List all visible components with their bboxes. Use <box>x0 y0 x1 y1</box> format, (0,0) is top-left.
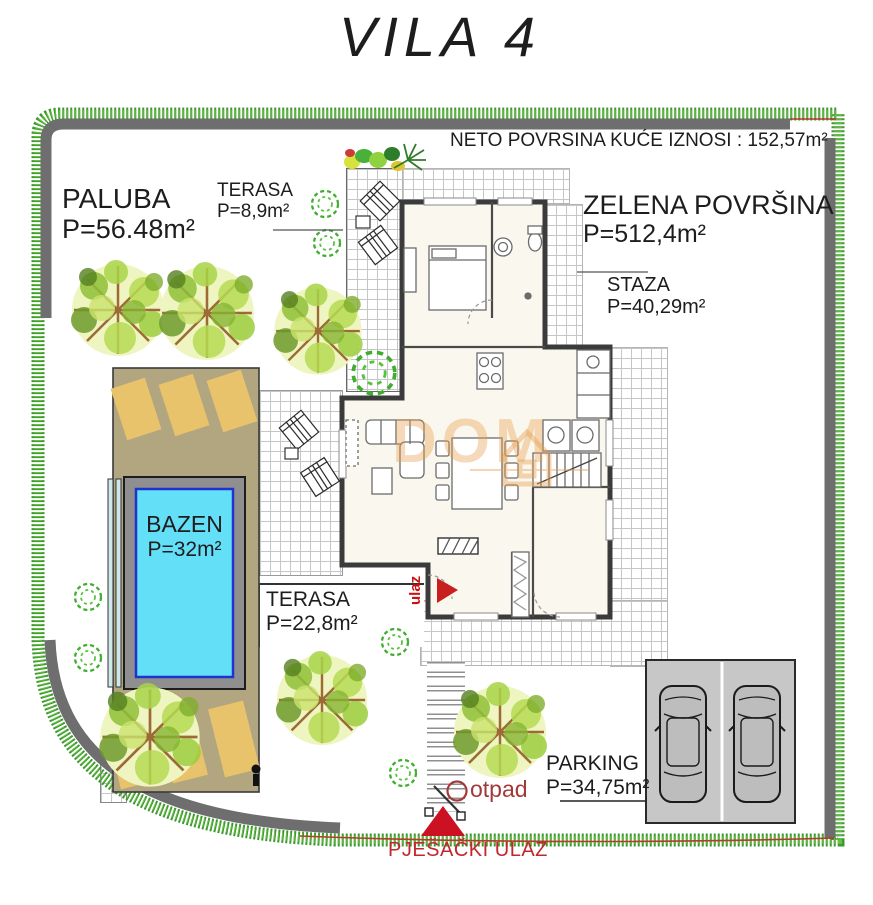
area-name: TERASA <box>266 588 358 612</box>
bush <box>312 191 338 217</box>
tree <box>159 262 255 360</box>
waste-point-icon <box>448 782 467 801</box>
area-value: P=22,8m² <box>266 612 358 636</box>
area-name: STAZA <box>607 274 705 296</box>
tree <box>71 260 165 356</box>
label-paluba: PALUBA P=56.48m² <box>62 183 195 245</box>
tree <box>273 284 362 375</box>
site-plan: DOM <box>0 0 873 905</box>
label-pedestrian-entrance: PJEŠAČKI ULAZ <box>388 839 548 861</box>
area-value: P=32m² <box>127 538 242 562</box>
area-value: P=34,75m² <box>546 776 649 800</box>
label-staza: STAZA P=40,29m² <box>607 274 705 319</box>
net-area-note: NETO POVRSINA KUĆE IZNOSI : 152,57m² <box>450 130 828 151</box>
small-tree <box>353 352 395 394</box>
bush <box>314 230 340 256</box>
tree <box>99 683 201 787</box>
area-value: P=512,4m² <box>583 220 834 248</box>
label-waste: otpad <box>470 777 528 803</box>
area-name: BAZEN <box>127 512 242 538</box>
area-value: P=56.48m² <box>62 214 195 244</box>
flower-bed <box>344 144 426 171</box>
watermark-text: DOM <box>392 407 552 476</box>
car-icon <box>729 686 785 802</box>
bush <box>75 645 101 671</box>
tree <box>276 651 368 745</box>
area-name: PARKING <box>546 752 649 776</box>
tree <box>453 682 547 778</box>
area-value: P=40,29m² <box>607 296 705 318</box>
label-entrance: ulaz <box>408 576 425 605</box>
plan-title: VILA 4 <box>275 6 605 69</box>
bush <box>390 760 416 786</box>
bush <box>75 584 101 610</box>
label-terasa-top: TERASA P=8,9m² <box>217 180 293 223</box>
area-name: PALUBA <box>62 183 195 214</box>
label-parking: PARKING P=34,75m² <box>546 752 649 799</box>
area-name: TERASA <box>217 180 293 201</box>
label-bazen: BAZEN P=32m² <box>127 512 242 561</box>
bush <box>382 629 408 655</box>
pool <box>108 477 245 689</box>
label-zelena-povrsina: ZELENA POVRŠINA P=512,4m² <box>583 190 834 248</box>
label-terasa-bottom: TERASA P=22,8m² <box>266 588 358 635</box>
parking-lot <box>646 660 795 823</box>
car-icon <box>655 686 711 802</box>
area-name: ZELENA POVRŠINA <box>583 190 834 220</box>
area-value: P=8,9m² <box>217 201 293 222</box>
